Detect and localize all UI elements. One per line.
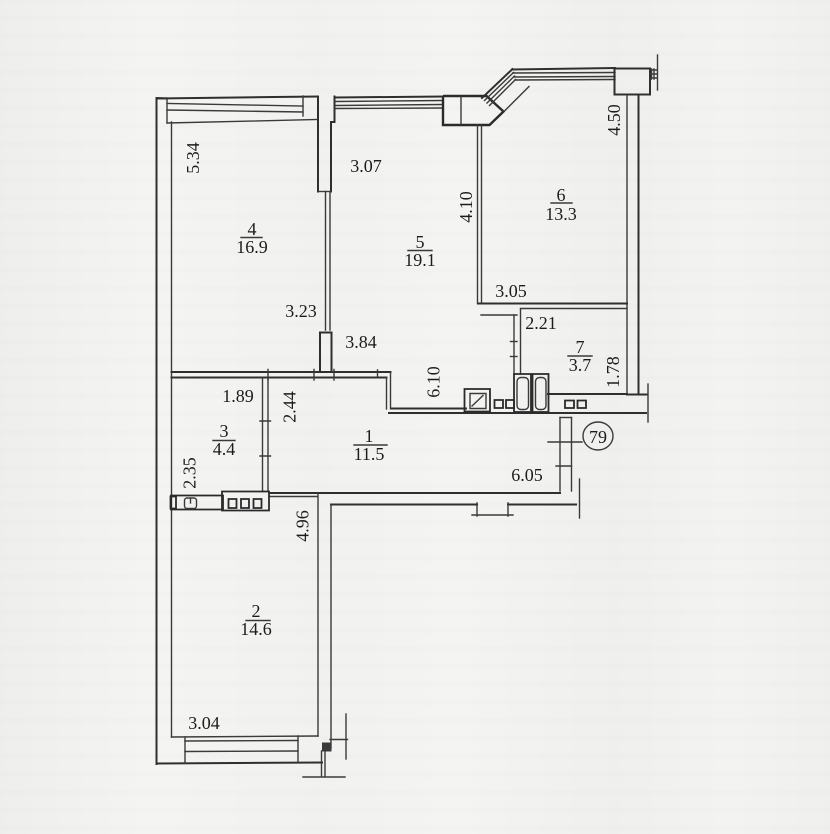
svg-text:5.34: 5.34	[183, 142, 203, 174]
svg-text:16.9: 16.9	[236, 237, 268, 257]
svg-text:2.44: 2.44	[280, 391, 300, 423]
svg-text:1.78: 1.78	[603, 356, 623, 388]
svg-text:3.7: 3.7	[569, 355, 592, 375]
svg-text:4: 4	[248, 219, 257, 239]
svg-text:7: 7	[576, 337, 585, 357]
svg-text:2.21: 2.21	[525, 313, 557, 333]
svg-text:3.23: 3.23	[285, 301, 317, 321]
svg-text:6.05: 6.05	[511, 465, 543, 485]
svg-text:4.10: 4.10	[456, 191, 476, 223]
svg-text:14.6: 14.6	[240, 619, 272, 639]
svg-text:3.84: 3.84	[345, 332, 377, 352]
svg-text:11.5: 11.5	[354, 444, 385, 464]
svg-text:6.10: 6.10	[424, 366, 444, 398]
svg-text:19.1: 19.1	[404, 250, 436, 270]
svg-text:79: 79	[589, 427, 607, 447]
svg-text:1.89: 1.89	[222, 386, 254, 406]
svg-text:1: 1	[365, 426, 374, 446]
svg-text:2.35: 2.35	[180, 457, 200, 489]
svg-text:4.50: 4.50	[604, 104, 624, 136]
svg-text:5: 5	[416, 232, 425, 252]
svg-text:4.4: 4.4	[213, 439, 236, 459]
svg-text:4.96: 4.96	[293, 510, 313, 542]
svg-text:3: 3	[220, 421, 229, 441]
svg-text:6: 6	[557, 185, 566, 205]
svg-text:3.07: 3.07	[350, 156, 382, 176]
svg-text:3.05: 3.05	[495, 281, 527, 301]
svg-text:2: 2	[252, 601, 261, 621]
svg-text:13.3: 13.3	[545, 204, 577, 224]
svg-text:3.04: 3.04	[188, 713, 220, 733]
